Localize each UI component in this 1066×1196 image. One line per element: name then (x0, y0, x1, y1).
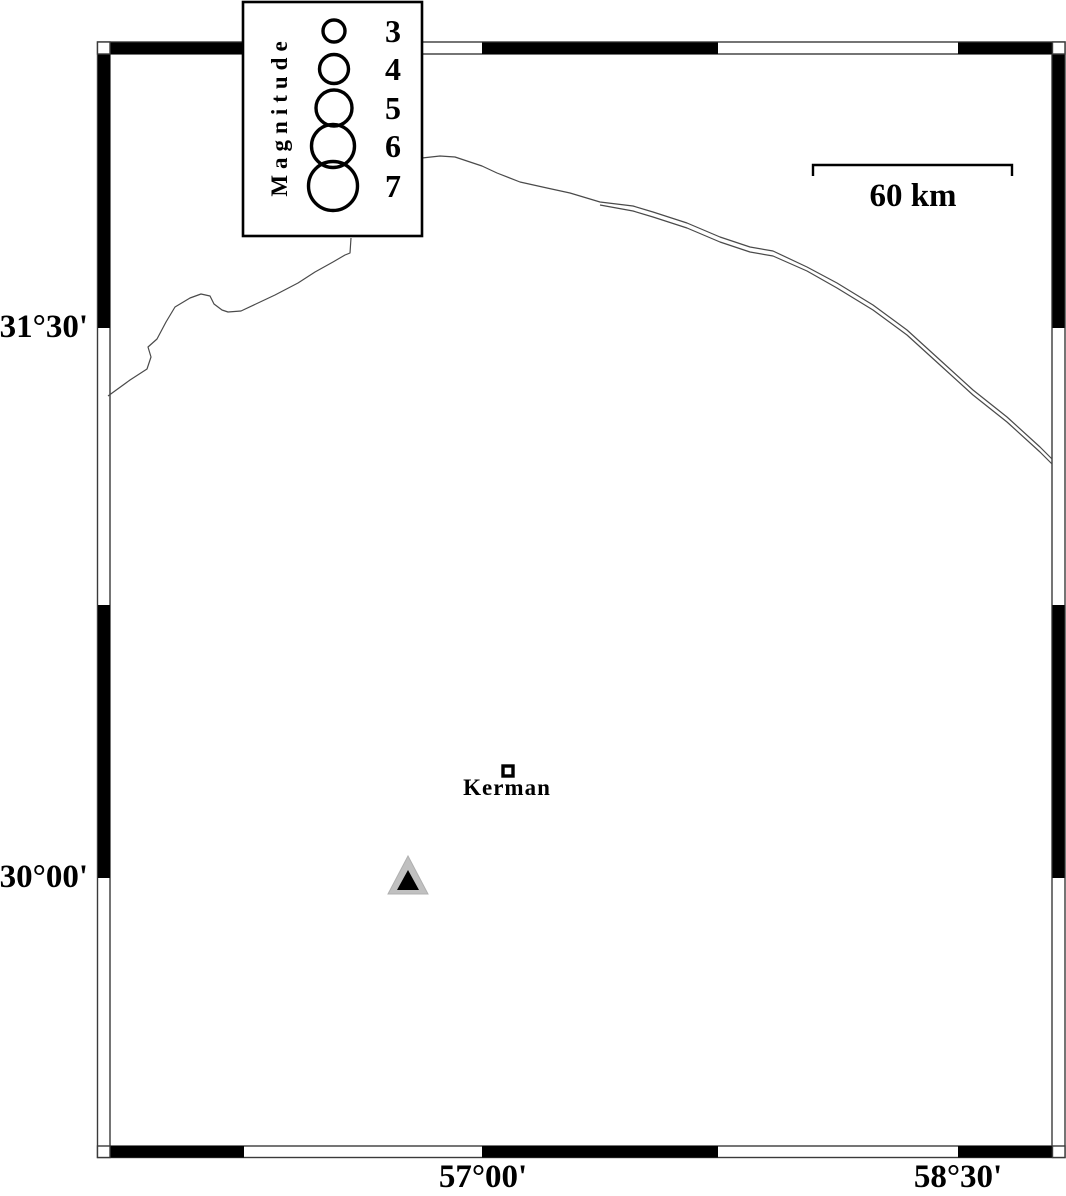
road-line-west (108, 238, 351, 396)
legend-magnitude-5: 5 (371, 90, 415, 126)
lat-label-30-00: 30°00' (0, 858, 88, 896)
scale-bar-label: 60 km (833, 178, 993, 214)
road-line-east-parallel (600, 205, 1052, 464)
scale-bar (813, 165, 1012, 176)
legend-title: Magnitude (268, 25, 292, 207)
lon-label-58-30: 58°30' (858, 1158, 1058, 1196)
legend-magnitude-7: 7 (371, 168, 415, 204)
station-triangle (388, 856, 428, 894)
lat-label-31-30: 31°30' (0, 308, 88, 346)
lon-label-57-00: 57°00' (383, 1158, 583, 1196)
map-figure: Magnitude 3 4 5 6 7 31°30' 30°00' 57°00'… (0, 0, 1066, 1196)
legend-magnitude-6: 6 (371, 128, 415, 164)
legend-magnitude-4: 4 (371, 51, 415, 87)
legend-magnitude-3: 3 (371, 13, 415, 49)
city-label-kerman: Kerman (437, 776, 577, 800)
